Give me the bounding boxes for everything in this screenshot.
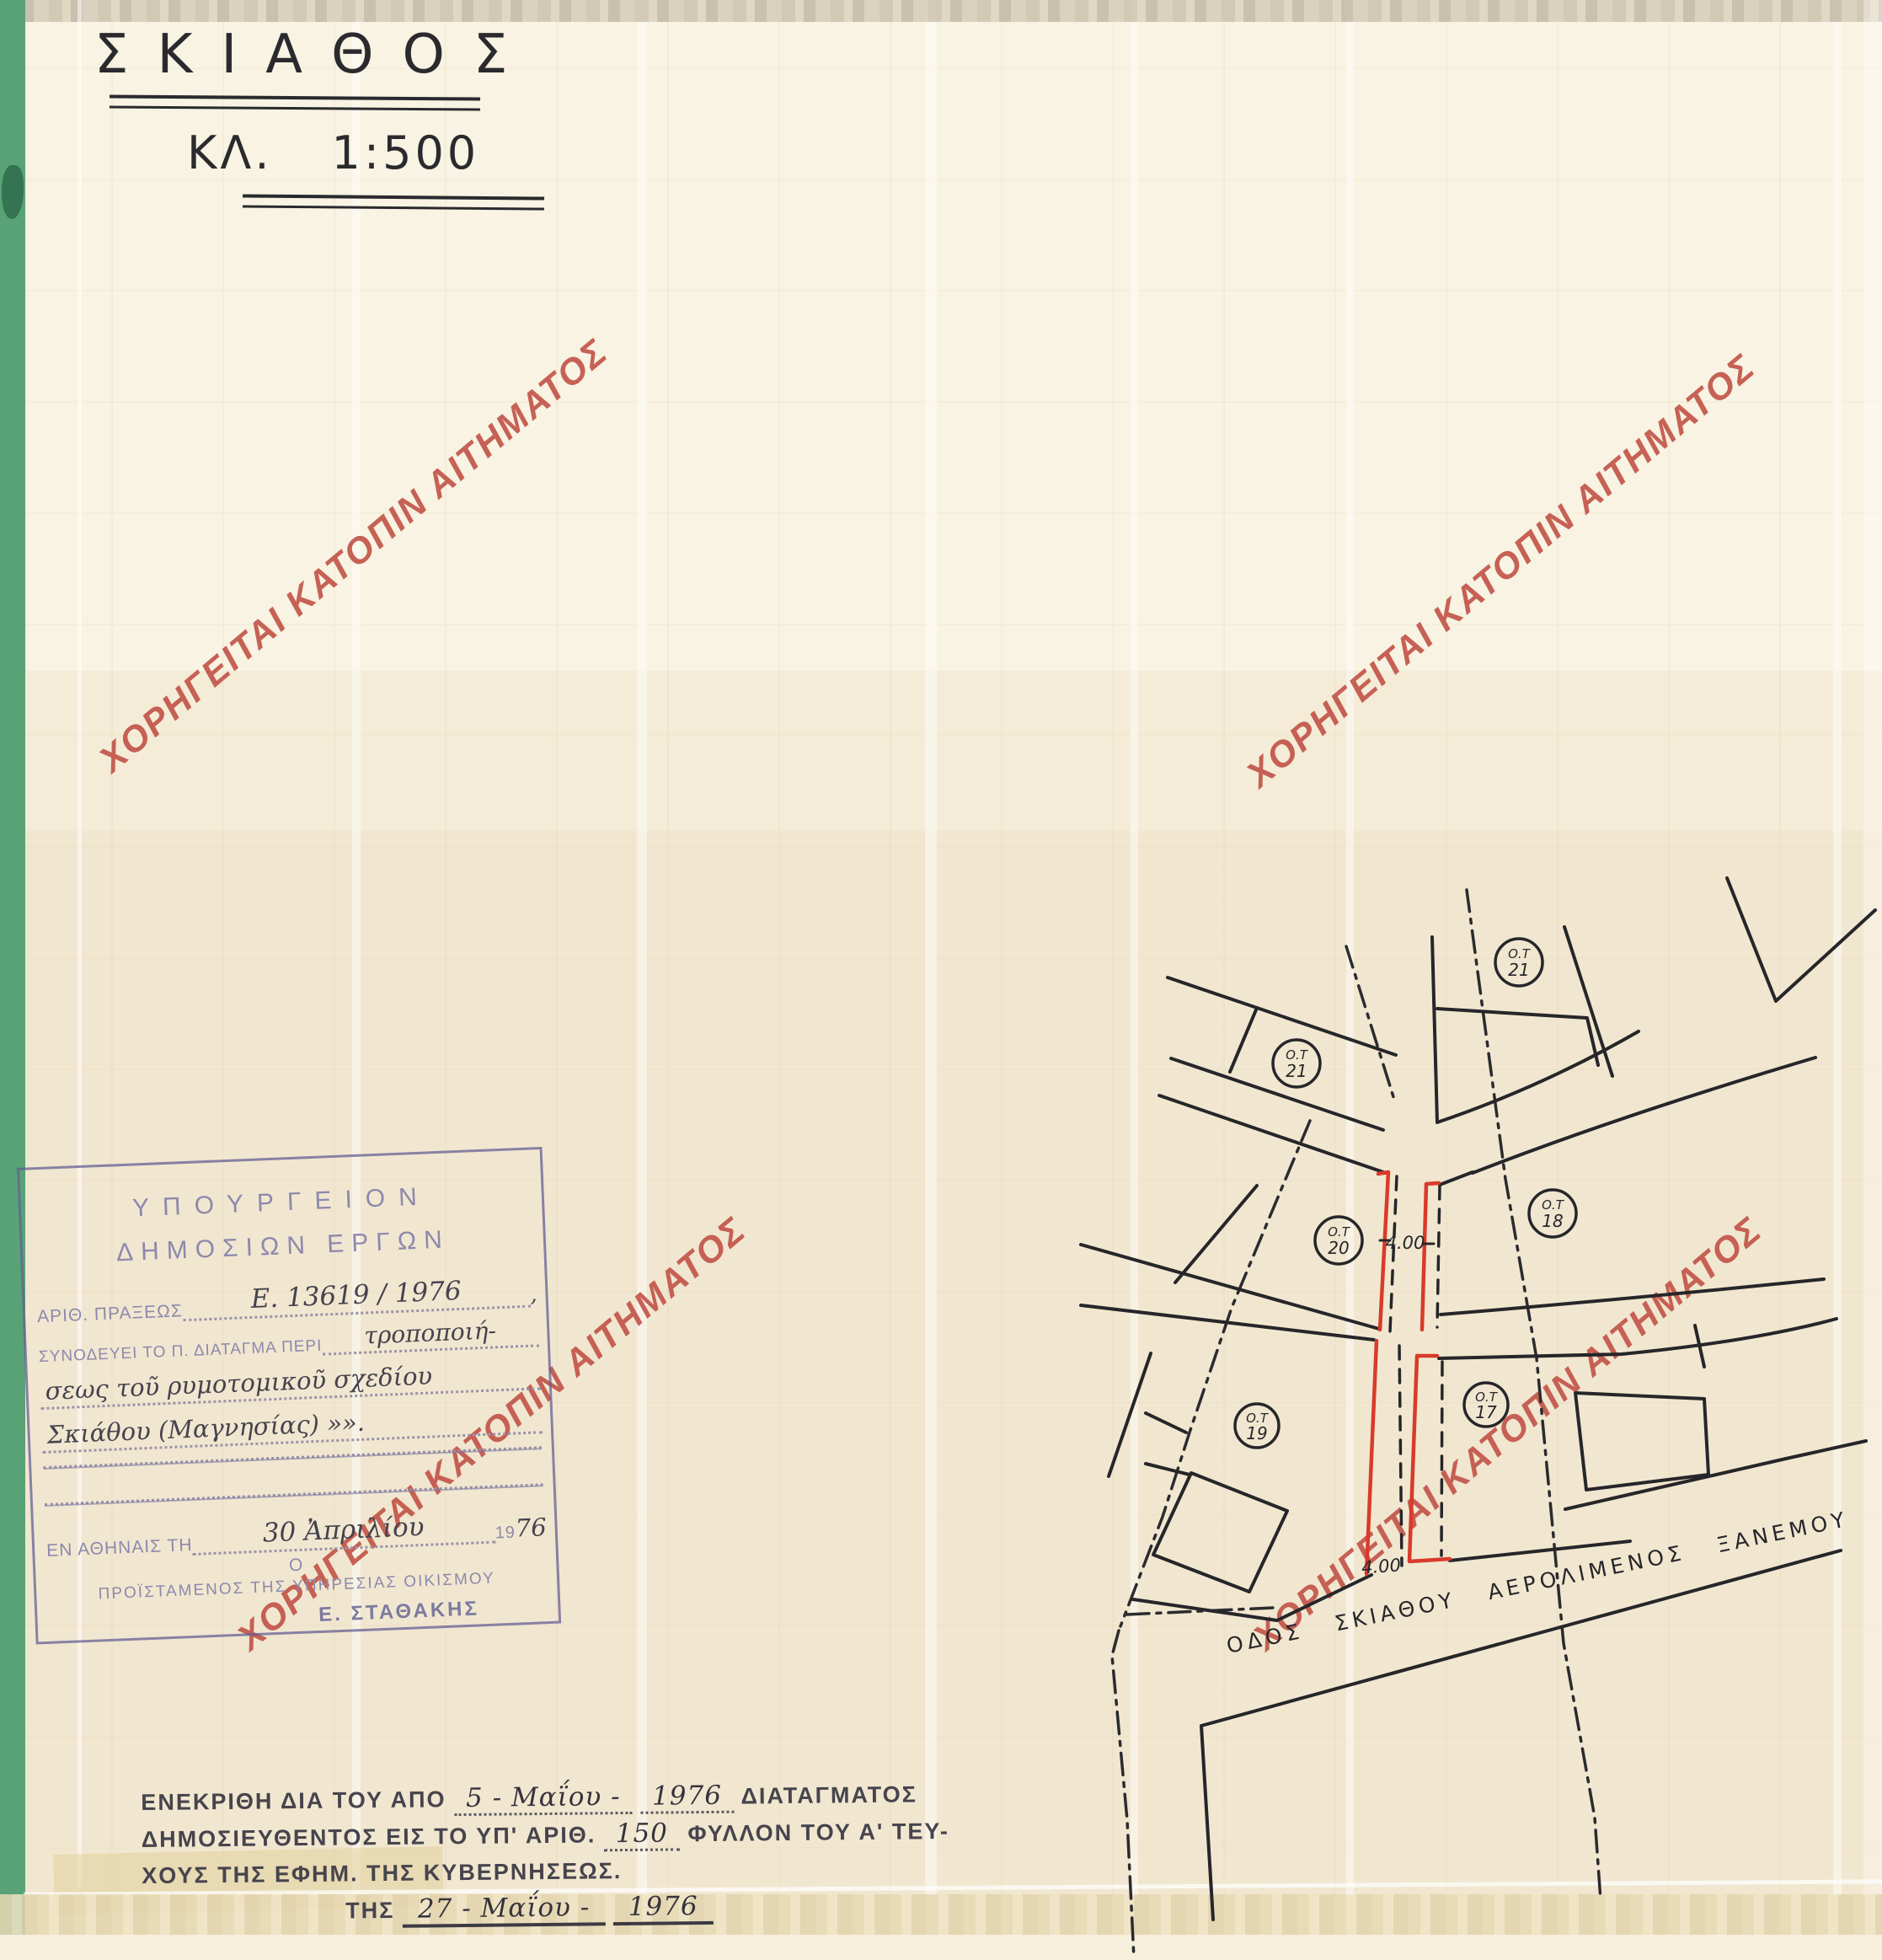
decree-value: τροποποιή- xyxy=(321,1315,539,1355)
act-number-value: Ε. 13619 / 1976 xyxy=(182,1273,531,1322)
approval-indent xyxy=(142,1919,338,1920)
title-underline xyxy=(110,94,480,110)
act-comma: , xyxy=(530,1282,537,1307)
scale-underline xyxy=(243,194,544,210)
dimension-value: 4.00 xyxy=(1386,1233,1425,1253)
ministry-title-1: ΥΠΟΥΡΓΕΙΟΝ xyxy=(20,1178,542,1228)
place-date-label: ΕΝ ΑΘΗΝΑΙΣ ΤΗ xyxy=(46,1535,193,1561)
year-value: 76 xyxy=(515,1513,547,1542)
watermark-text: ΧΟΡΗΓΕΙΤΑΙ ΚΑΤΟΠΙΝ ΑΙΤΗΜΑΤΟΣ xyxy=(92,331,617,781)
year-prefix: 19 xyxy=(495,1524,516,1544)
approval-line1-date: 5 - Μαΐου - xyxy=(454,1781,633,1816)
decree-label: ΣΥΝΟΔΕΥΕΙ ΤΟ Π. ΔΙΑΤΑΓΜΑ ΠΕΡΙ xyxy=(39,1337,323,1367)
street-name-label: ΟΔΟΣ ΣΚΙΑΘΟΥ ΑΕΡΟΛΙΜΕΝΟΣ ΞΑΝΕΜΟΥ xyxy=(1224,1507,1850,1658)
approval-line4-prefix: ΤΗΣ xyxy=(345,1898,395,1924)
block-number: 19 xyxy=(1246,1423,1267,1443)
axis-dashdot-lines xyxy=(1112,890,1601,1958)
date-value: 30 Ἀπριλίου xyxy=(191,1509,495,1556)
block-number: 21 xyxy=(1286,1061,1307,1081)
watermark-text: ΧΟΡΗΓΕΙΤΑΙ ΚΑΤΟΠΙΝ ΑΙΤΗΜΑΤΟΣ xyxy=(1239,346,1764,796)
ministry-title-2: ΔΗΜΟΣΙΩΝ ΕΡΓΩΝ xyxy=(23,1222,544,1272)
blank-rule-line xyxy=(45,1485,543,1507)
approval-line1-prefix: ΕΝΕΚΡΙΘΗ ΔΙΑ ΤΟΥ ΑΠΟ xyxy=(141,1786,446,1815)
approval-line2-suffix: ΦΥΛΛΟΝ ΤΟΥ Α' ΤΕΥ- xyxy=(687,1818,949,1846)
street-plan-drawing: Ο.Τ 21 Ο.Τ 21 Ο.Τ 20 Ο.Τ 18 Ο.Τ 19 Ο.Τ 1… xyxy=(1053,860,1882,1960)
paper-fold-streak xyxy=(925,0,937,1896)
dimension-value: 4.00 xyxy=(1361,1555,1401,1577)
block-number: 17 xyxy=(1475,1402,1497,1422)
decree-line3: Σκιάθου (Μαγνησίας) »». xyxy=(41,1400,543,1454)
paper-light-band xyxy=(0,22,1882,671)
approval-line1-suffix: ΔΙΑΤΑΓΜΑΤΟΣ xyxy=(741,1781,917,1808)
approval-line1-year: 1976 xyxy=(640,1781,734,1814)
scale-row: ΚΛ. 1:500 xyxy=(187,126,541,179)
approval-line2-number: 150 xyxy=(604,1818,681,1851)
paper-mid-band xyxy=(0,671,1882,831)
scale-label: ΚΛ. xyxy=(187,126,273,179)
scan-top-edge xyxy=(0,0,1882,22)
approval-stamp: ΕΝΕΚΡΙΘΗ ΔΙΑ ΤΟΥ ΑΠΟ 5 - Μαΐου - 1976 ΔΙ… xyxy=(141,1775,951,1931)
block-number: 21 xyxy=(1508,960,1529,980)
approval-line4-year: 1976 xyxy=(613,1891,714,1925)
approval-line2-prefix: ΔΗΜΟΣΙΕΥΘΕΝΤΟΣ ΕΙΣ ΤΟ ΥΠ' ΑΡΙΘ. xyxy=(142,1822,596,1852)
green-binding-edge xyxy=(0,0,25,1960)
scale-value: 1:500 xyxy=(332,126,480,179)
act-number-label: ΑΡΙΘ. ΠΡΑΞΕΩΣ xyxy=(37,1301,184,1327)
page-title: ΣΚΙΑΘΟΣ xyxy=(94,24,536,86)
blank-rule-line xyxy=(43,1448,542,1470)
block-number: 18 xyxy=(1542,1211,1563,1231)
block-number: 20 xyxy=(1328,1238,1349,1258)
decree-line2: σεως τοῦ ρυμοτομικοῦ σχεδίου xyxy=(40,1357,541,1410)
approval-line4-date: 27 - Μαΐου - xyxy=(403,1892,606,1928)
ministry-stamp: ΥΠΟΥΡΓΕΙΟΝ ΔΗΜΟΣΙΩΝ ΕΡΓΩΝ ΑΡΙΘ. ΠΡΑΞΕΩΣ … xyxy=(17,1147,561,1645)
scanned-plan-document: { "document": { "title": "ΣΚΙΑΘΟΣ", "sca… xyxy=(0,0,1882,1960)
